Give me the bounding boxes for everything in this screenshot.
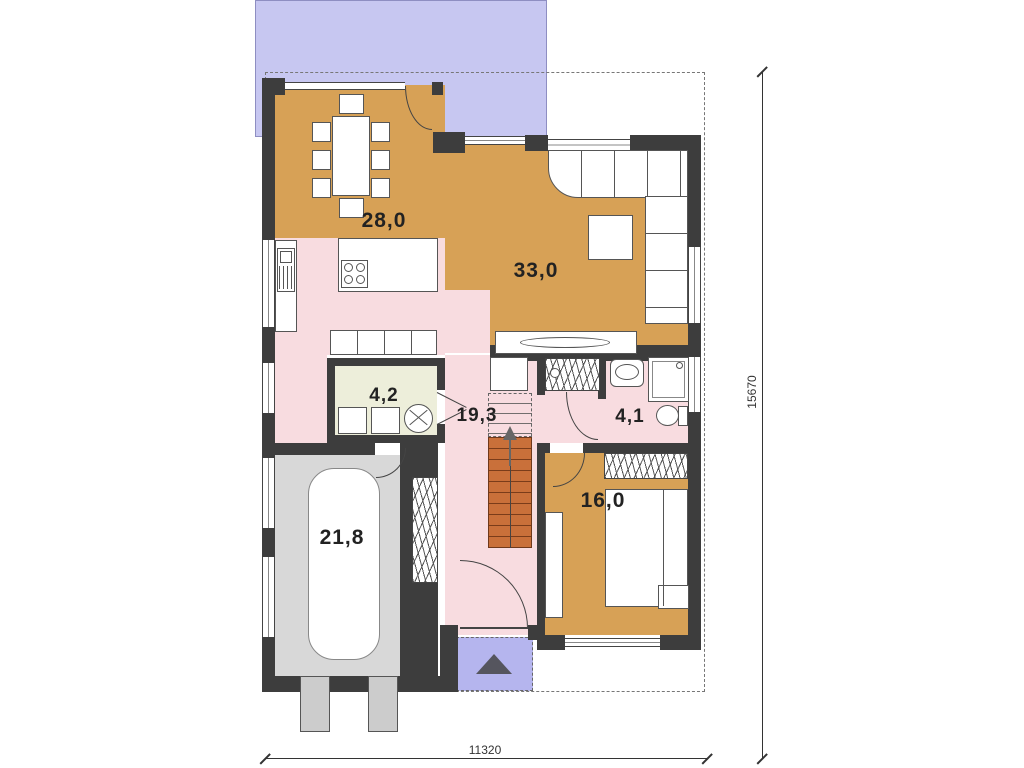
- bedroom-wardrobe: [604, 453, 688, 479]
- sofa-right: [645, 196, 688, 324]
- floor-plan: 28,0 33,0 4,2 19,3 4,1 16,0 21,8 11320 1…: [0, 0, 1024, 768]
- entry-door-leaf: [460, 627, 528, 629]
- hall-bottom-wall: [528, 625, 537, 640]
- wall-segment: [412, 443, 438, 477]
- bedroom-label: 16,0: [581, 489, 626, 513]
- stairs-direction-arrow-icon: [503, 426, 517, 440]
- bedroom-bottom-wall: [537, 635, 565, 650]
- hall-wardrobe: [412, 477, 438, 583]
- dryer: [371, 407, 400, 434]
- dimension-bottom-label: 11320: [469, 743, 501, 757]
- entrance-arrow-icon: [476, 654, 512, 674]
- wall-segment: [412, 583, 438, 676]
- burner: [344, 275, 353, 284]
- bedroom-top-wall: [537, 443, 550, 453]
- chair: [312, 122, 331, 142]
- coffee-table: [588, 215, 633, 260]
- kitchen-corridor-floor: [275, 355, 327, 443]
- dining-table: [332, 116, 370, 196]
- stairs-direction-arrow-tail: [509, 440, 511, 466]
- chair: [312, 178, 331, 198]
- bedroom-top-wall: [583, 443, 690, 453]
- dimension-line-bottom: [265, 758, 708, 759]
- bathroom-window: [688, 357, 701, 412]
- wall-segment: [440, 625, 458, 692]
- utility-top-wall: [327, 358, 445, 366]
- chair: [371, 122, 390, 142]
- dining-window: [285, 82, 405, 90]
- closet-knob: [550, 368, 560, 378]
- burner: [356, 263, 365, 272]
- corridor-window: [262, 363, 275, 413]
- wall-segment: [433, 132, 465, 153]
- right-wall-upper: [688, 135, 701, 247]
- wall-segment: [262, 327, 275, 363]
- garage-top-wall: [262, 443, 375, 455]
- kitchen-window: [262, 240, 275, 327]
- toilet-tank: [678, 406, 688, 426]
- wall-segment: [262, 528, 275, 557]
- living-room-label: 33,0: [514, 259, 559, 283]
- hall-shaft: [490, 357, 528, 391]
- garage-pillar: [368, 676, 398, 732]
- dimension-right-label: 15670: [745, 362, 759, 422]
- utility-left-wall: [327, 358, 335, 443]
- bedroom-left-wall: [537, 443, 545, 635]
- hall-opening-floor: [445, 290, 490, 353]
- chair: [339, 198, 364, 218]
- shower-drain: [676, 362, 683, 369]
- car: [308, 468, 380, 660]
- wall-segment: [688, 323, 701, 357]
- wall-segment: [525, 135, 548, 151]
- kitchen-cabinet: [330, 330, 437, 355]
- burner: [344, 263, 353, 272]
- burner: [356, 275, 365, 284]
- garage-window-1: [262, 458, 275, 528]
- sink-drainer: [279, 266, 293, 289]
- bed-pillow-divider: [663, 490, 664, 606]
- wall-segment: [262, 78, 275, 240]
- washing-machine: [338, 407, 367, 434]
- utility-right-wall: [437, 358, 445, 390]
- sink-faucet: [280, 251, 292, 263]
- chair: [312, 150, 331, 170]
- utility-right-wall: [437, 424, 445, 443]
- dimension-line-right: [762, 72, 763, 759]
- chair: [339, 94, 364, 114]
- hallway-label: 19,3: [457, 405, 498, 427]
- bedroom-closet: [545, 512, 563, 618]
- bedroom-window: [565, 638, 660, 647]
- living-window-top-1: [465, 136, 525, 145]
- closet-left-wall: [537, 361, 545, 395]
- utility-bottom-wall: [327, 435, 437, 443]
- tv-icon: [520, 337, 610, 348]
- living-window-right: [688, 247, 701, 323]
- washbasin-bowl: [615, 364, 639, 380]
- sofa-top: [548, 150, 688, 198]
- garage-label: 21,8: [320, 526, 365, 550]
- utility-room-label: 4,2: [369, 385, 398, 407]
- garage-window-2: [262, 557, 275, 637]
- garage-pillar: [300, 676, 330, 732]
- bedroom-bottom-wall: [660, 635, 701, 650]
- dining-room-label: 28,0: [362, 209, 407, 233]
- wall-segment: [432, 82, 443, 95]
- bathroom-label: 4,1: [615, 406, 644, 428]
- chair: [371, 178, 390, 198]
- toilet-bowl: [656, 405, 679, 426]
- garage-bottom-wall: [262, 676, 455, 692]
- chair: [371, 150, 390, 170]
- garage-right-wall: [400, 443, 412, 676]
